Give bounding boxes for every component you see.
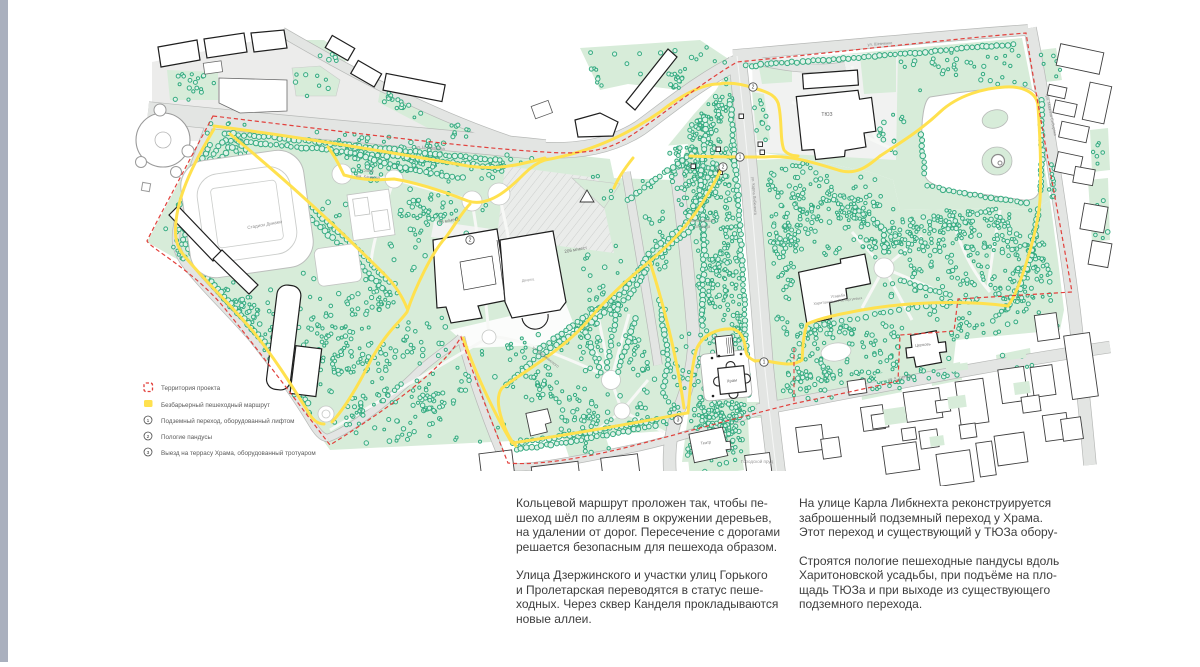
svg-text:Мельковская: Мельковская xyxy=(689,218,714,223)
svg-text:Сквер: Сквер xyxy=(362,168,375,174)
svg-text:Пологие пандусы: Пологие пандусы xyxy=(161,434,212,441)
svg-text:2: 2 xyxy=(469,238,472,244)
svg-text:Выезд на террасу Храма, оборуд: Выезд на террасу Храма, оборудованный тр… xyxy=(161,449,316,457)
svg-text:2: 2 xyxy=(147,434,150,440)
svg-text:1: 1 xyxy=(147,418,150,424)
svg-text:Городской пруд: Городской пруд xyxy=(741,458,774,464)
svg-text:Подземный переход, оборудованн: Подземный переход, оборудованный лифтом xyxy=(161,417,294,425)
svg-text:Безбарьерный пешеходный маршру: Безбарьерный пешеходный маршрут xyxy=(161,401,270,409)
svg-text:1: 1 xyxy=(763,360,766,366)
svg-text:3: 3 xyxy=(147,450,150,456)
svg-text:3: 3 xyxy=(677,418,680,424)
svg-text:Территория проекта: Территория проекта xyxy=(161,385,221,392)
svg-text:1: 1 xyxy=(739,155,742,161)
svg-text:2: 2 xyxy=(722,165,725,171)
svg-text:ТЮЗ: ТЮЗ xyxy=(821,112,832,118)
svg-text:слобода: слобода xyxy=(694,224,711,229)
svg-text:2: 2 xyxy=(752,85,755,91)
